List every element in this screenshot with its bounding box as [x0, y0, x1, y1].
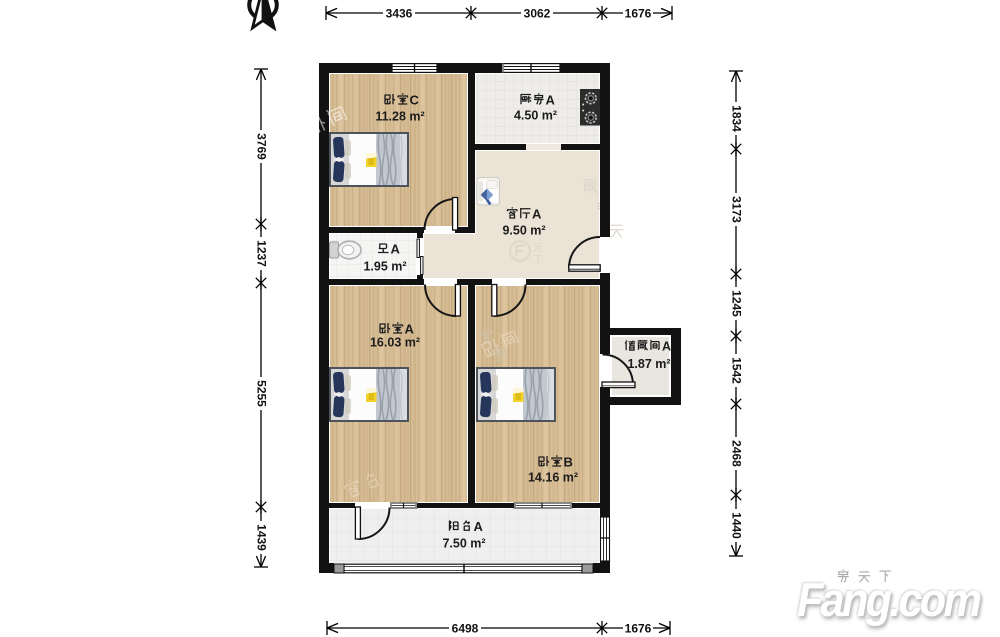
svg-text:1542: 1542 [730, 357, 744, 384]
svg-text:B: B [564, 455, 573, 470]
svg-text:A: A [546, 93, 556, 108]
svg-text:3769: 3769 [255, 133, 269, 160]
svg-text:A: A [532, 207, 542, 222]
svg-text:3062: 3062 [524, 7, 551, 21]
svg-text:1.95 m²: 1.95 m² [363, 260, 406, 274]
svg-text:14.16 m²: 14.16 m² [528, 471, 578, 485]
svg-text:A: A [391, 242, 401, 257]
svg-text:4.50 m²: 4.50 m² [514, 109, 557, 123]
svg-text:9.50 m²: 9.50 m² [502, 224, 545, 238]
svg-text:1834: 1834 [730, 105, 744, 132]
svg-text:1676: 1676 [625, 622, 652, 636]
svg-text:1676: 1676 [625, 7, 652, 21]
svg-text:7.50 m²: 7.50 m² [442, 537, 485, 551]
svg-text:1237: 1237 [255, 240, 269, 267]
svg-text:3173: 3173 [730, 196, 744, 223]
svg-text:11.28 m²: 11.28 m² [375, 110, 424, 124]
svg-text:A: A [662, 340, 671, 354]
svg-text:1439: 1439 [255, 524, 269, 551]
svg-text:C: C [410, 93, 420, 108]
svg-text:5255: 5255 [255, 380, 269, 407]
svg-text:A: A [474, 519, 484, 534]
svg-text:1440: 1440 [730, 512, 744, 539]
svg-text:2468: 2468 [730, 440, 744, 467]
svg-text:3436: 3436 [386, 7, 413, 21]
svg-text:1245: 1245 [730, 290, 744, 317]
svg-text:16.03 m²: 16.03 m² [370, 336, 420, 350]
svg-text:1.87 m²: 1.87 m² [627, 357, 670, 371]
svg-text:A: A [405, 322, 415, 337]
svg-text:6498: 6498 [452, 622, 479, 636]
